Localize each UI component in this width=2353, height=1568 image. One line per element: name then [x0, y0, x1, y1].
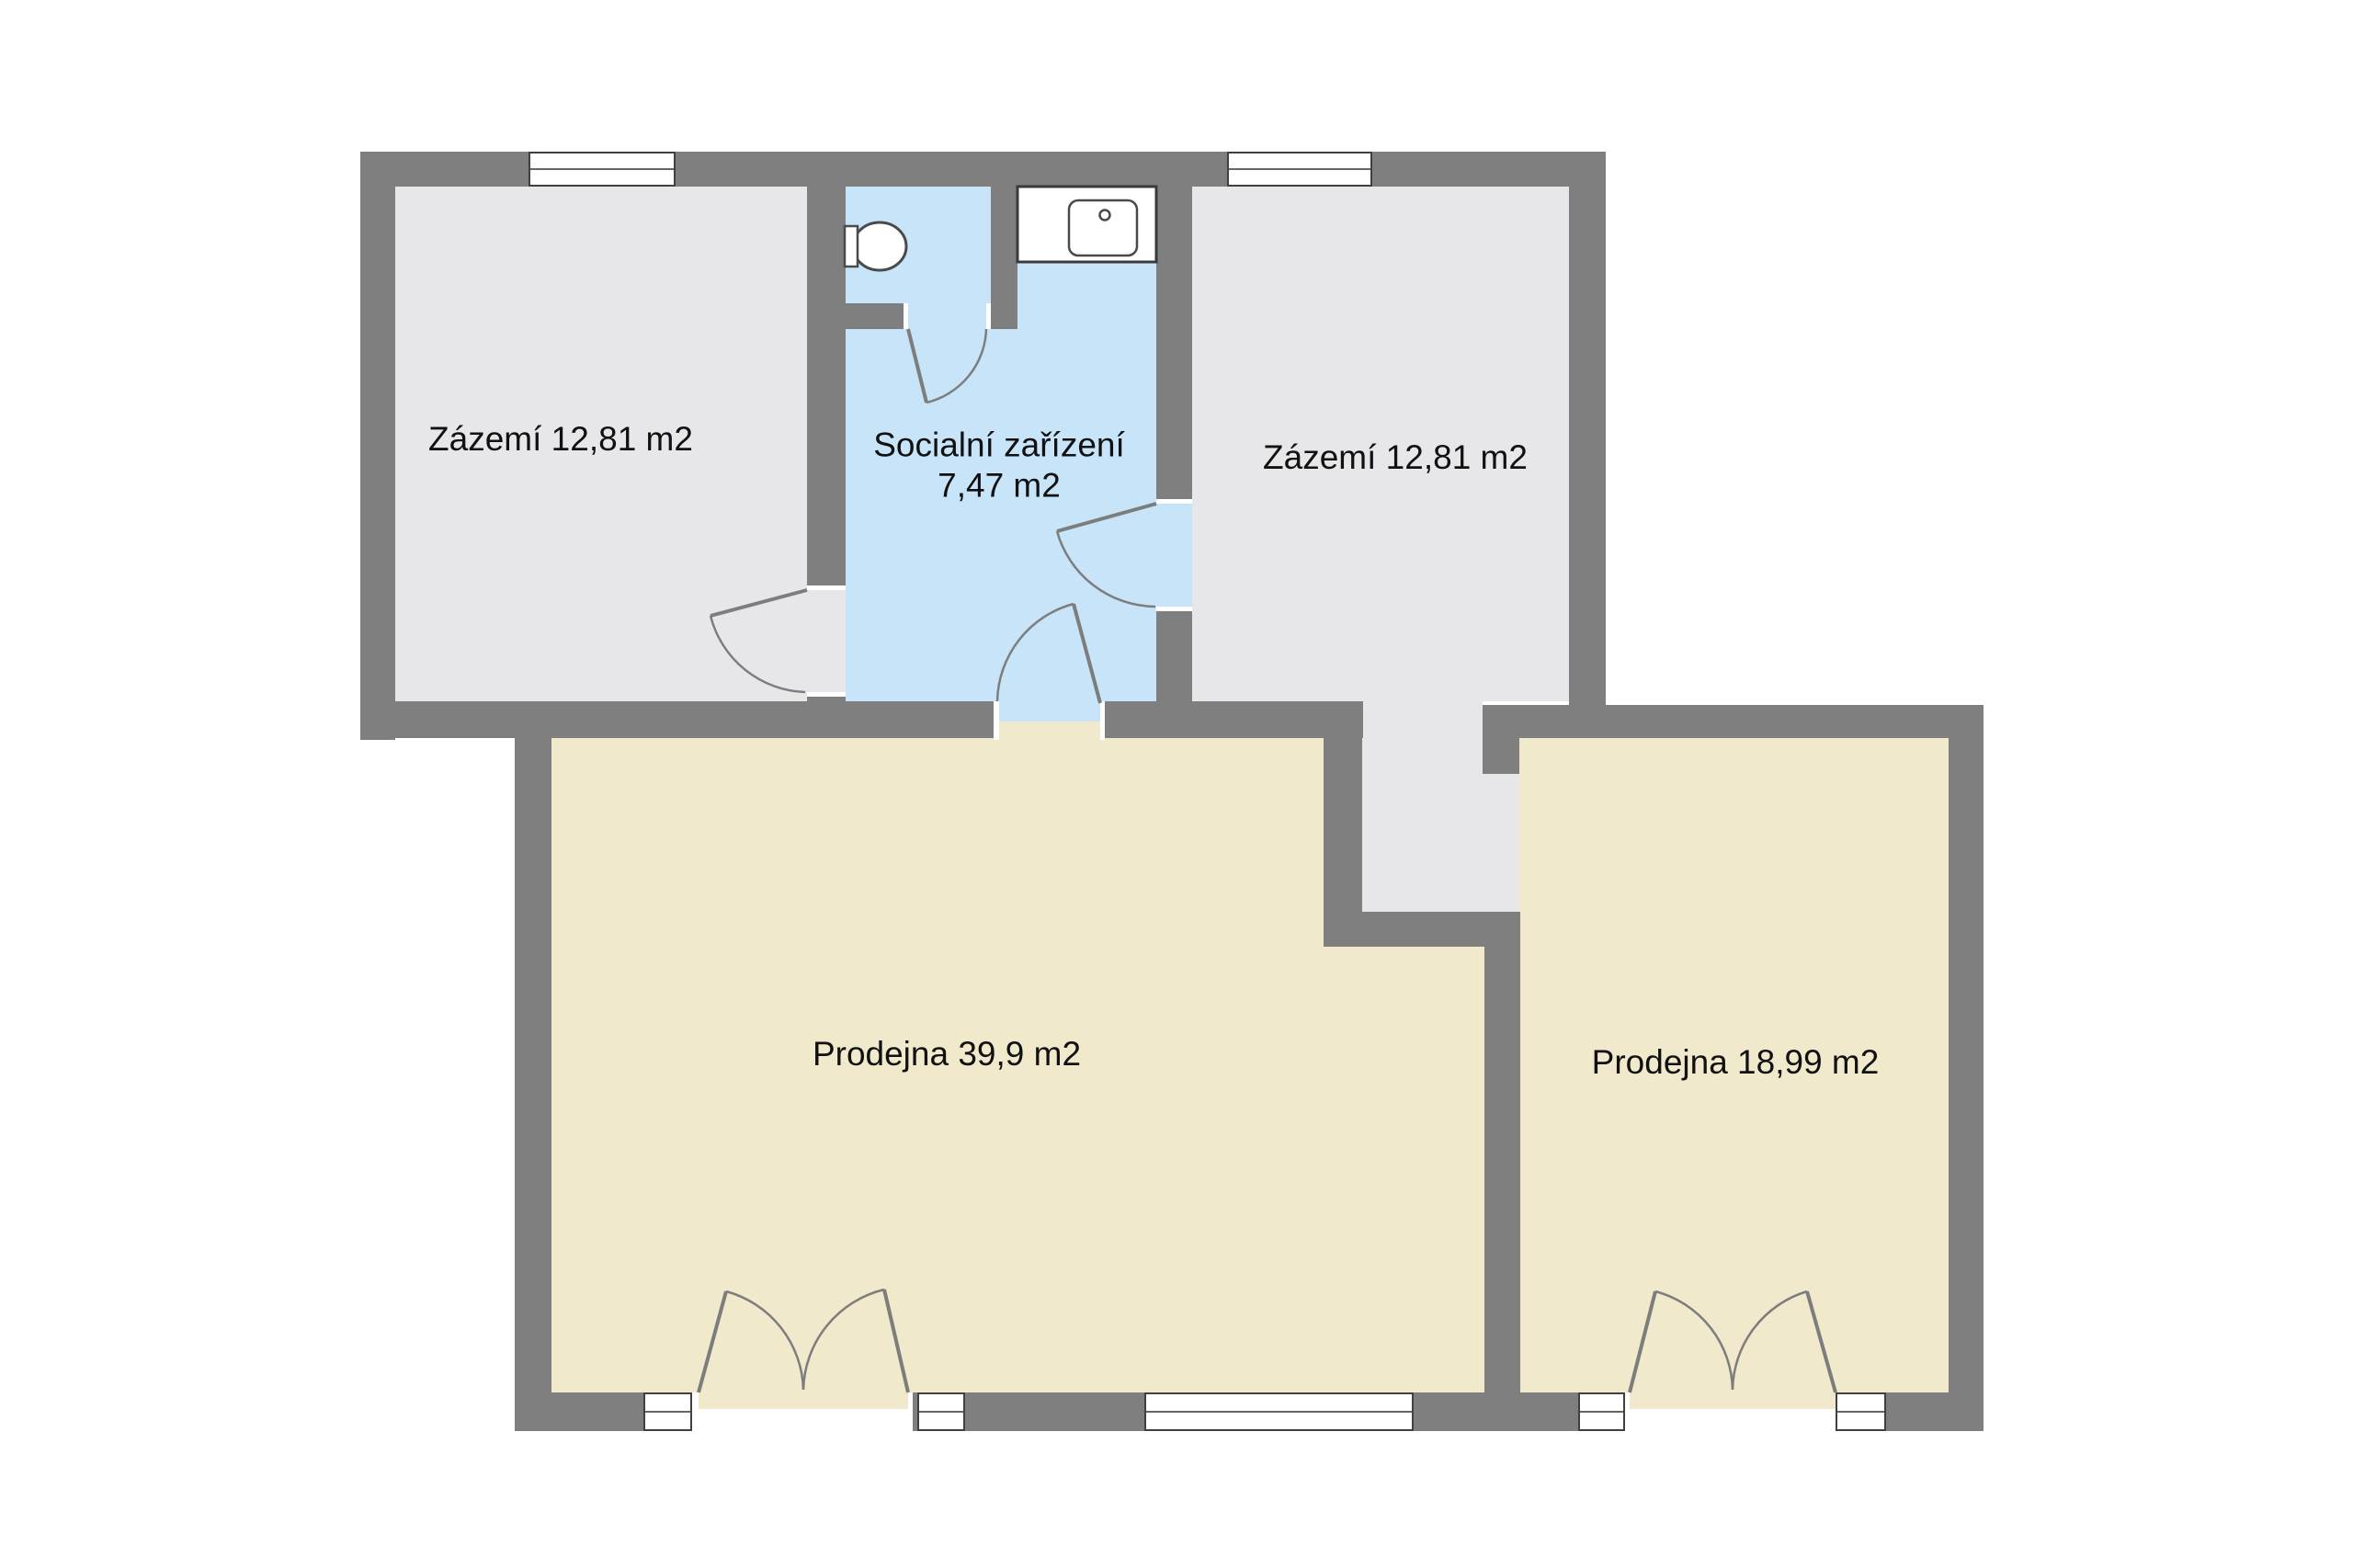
room-label-prodejna-small: Prodejna 18,99 m2 — [1592, 1042, 1880, 1083]
floorplan: Zázemí 12,81 m2 Socialní zařízení 7,47 m… — [0, 0, 2353, 1568]
opening-wc-door — [908, 303, 986, 329]
room-label-zazemi-right: Zázemí 12,81 m2 — [1263, 437, 1528, 478]
door-jamb — [1625, 1392, 1630, 1431]
window — [1227, 152, 1372, 187]
opening-entrance-small-b — [1630, 1409, 1836, 1431]
door-jamb — [994, 701, 999, 740]
opening-socialni-zazemi — [1156, 504, 1192, 607]
room-prodejna-large-floor-2 — [1324, 947, 1484, 1392]
door-jamb — [1156, 499, 1192, 504]
room-label-socialni-line1: Socialní zařízení — [873, 425, 1125, 465]
opening-socialni-prodejna-a — [999, 701, 1100, 722]
door-jamb — [692, 1392, 699, 1431]
window — [917, 1392, 965, 1431]
window — [529, 152, 676, 187]
door-jamb — [1100, 701, 1105, 740]
wall-right-upper — [1569, 152, 1606, 705]
wall-prodejna-divider — [1484, 912, 1520, 1392]
door-jamb — [807, 585, 846, 590]
door-jamb — [908, 1392, 913, 1431]
window — [1578, 1392, 1625, 1431]
room-label-prodejna-large: Prodejna 39,9 m2 — [813, 1034, 1081, 1074]
corridor-passage-floor — [1483, 774, 1519, 912]
wall-top-prodejna-small — [1483, 705, 1984, 738]
opening-entrance-large-a — [699, 1392, 908, 1409]
opening-socialni-prodejna-b — [999, 722, 1100, 738]
opening-zazemi-socialni — [807, 590, 846, 692]
door-jamb — [1156, 607, 1192, 611]
wall-left-upper — [360, 152, 395, 740]
wall-socialni-zazemi — [1156, 187, 1192, 701]
room-label-zazemi-left: Zázemí 12,81 m2 — [428, 419, 693, 460]
wall-left-lower — [515, 701, 551, 1431]
opening-entrance-small-a — [1630, 1392, 1836, 1409]
room-label-socialni: Socialní zařízení 7,47 m2 — [873, 425, 1125, 505]
window — [1836, 1392, 1886, 1431]
wall-mid-horizontal — [360, 701, 1363, 738]
opening-entrance-large-b — [699, 1409, 908, 1431]
corridor-floor — [1362, 701, 1483, 912]
door-jamb — [904, 303, 908, 329]
wall-right-lower — [1949, 705, 1984, 1431]
door-jamb — [807, 692, 846, 697]
door-jamb — [986, 303, 991, 329]
room-label-socialni-line2: 7,47 m2 — [873, 465, 1125, 506]
window — [643, 1392, 692, 1431]
window — [1144, 1392, 1414, 1431]
